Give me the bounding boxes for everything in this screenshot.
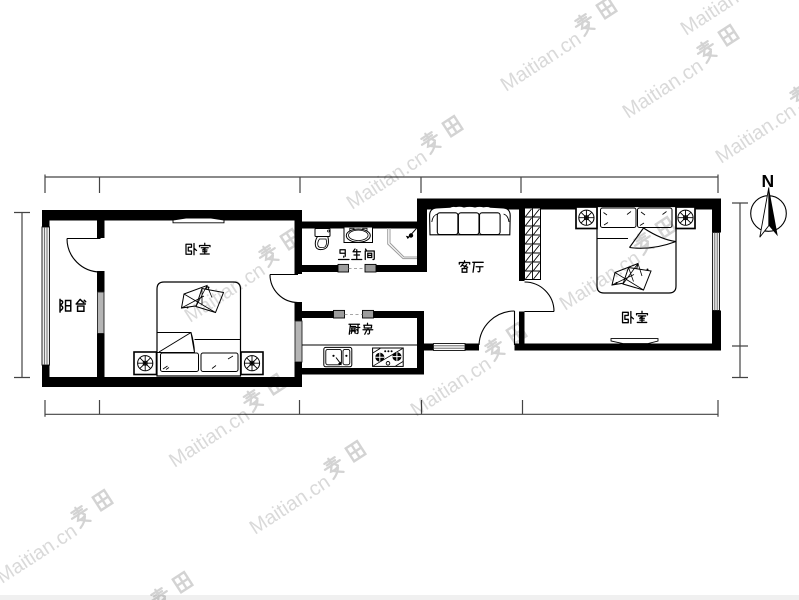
- svg-text:N: N: [762, 171, 775, 191]
